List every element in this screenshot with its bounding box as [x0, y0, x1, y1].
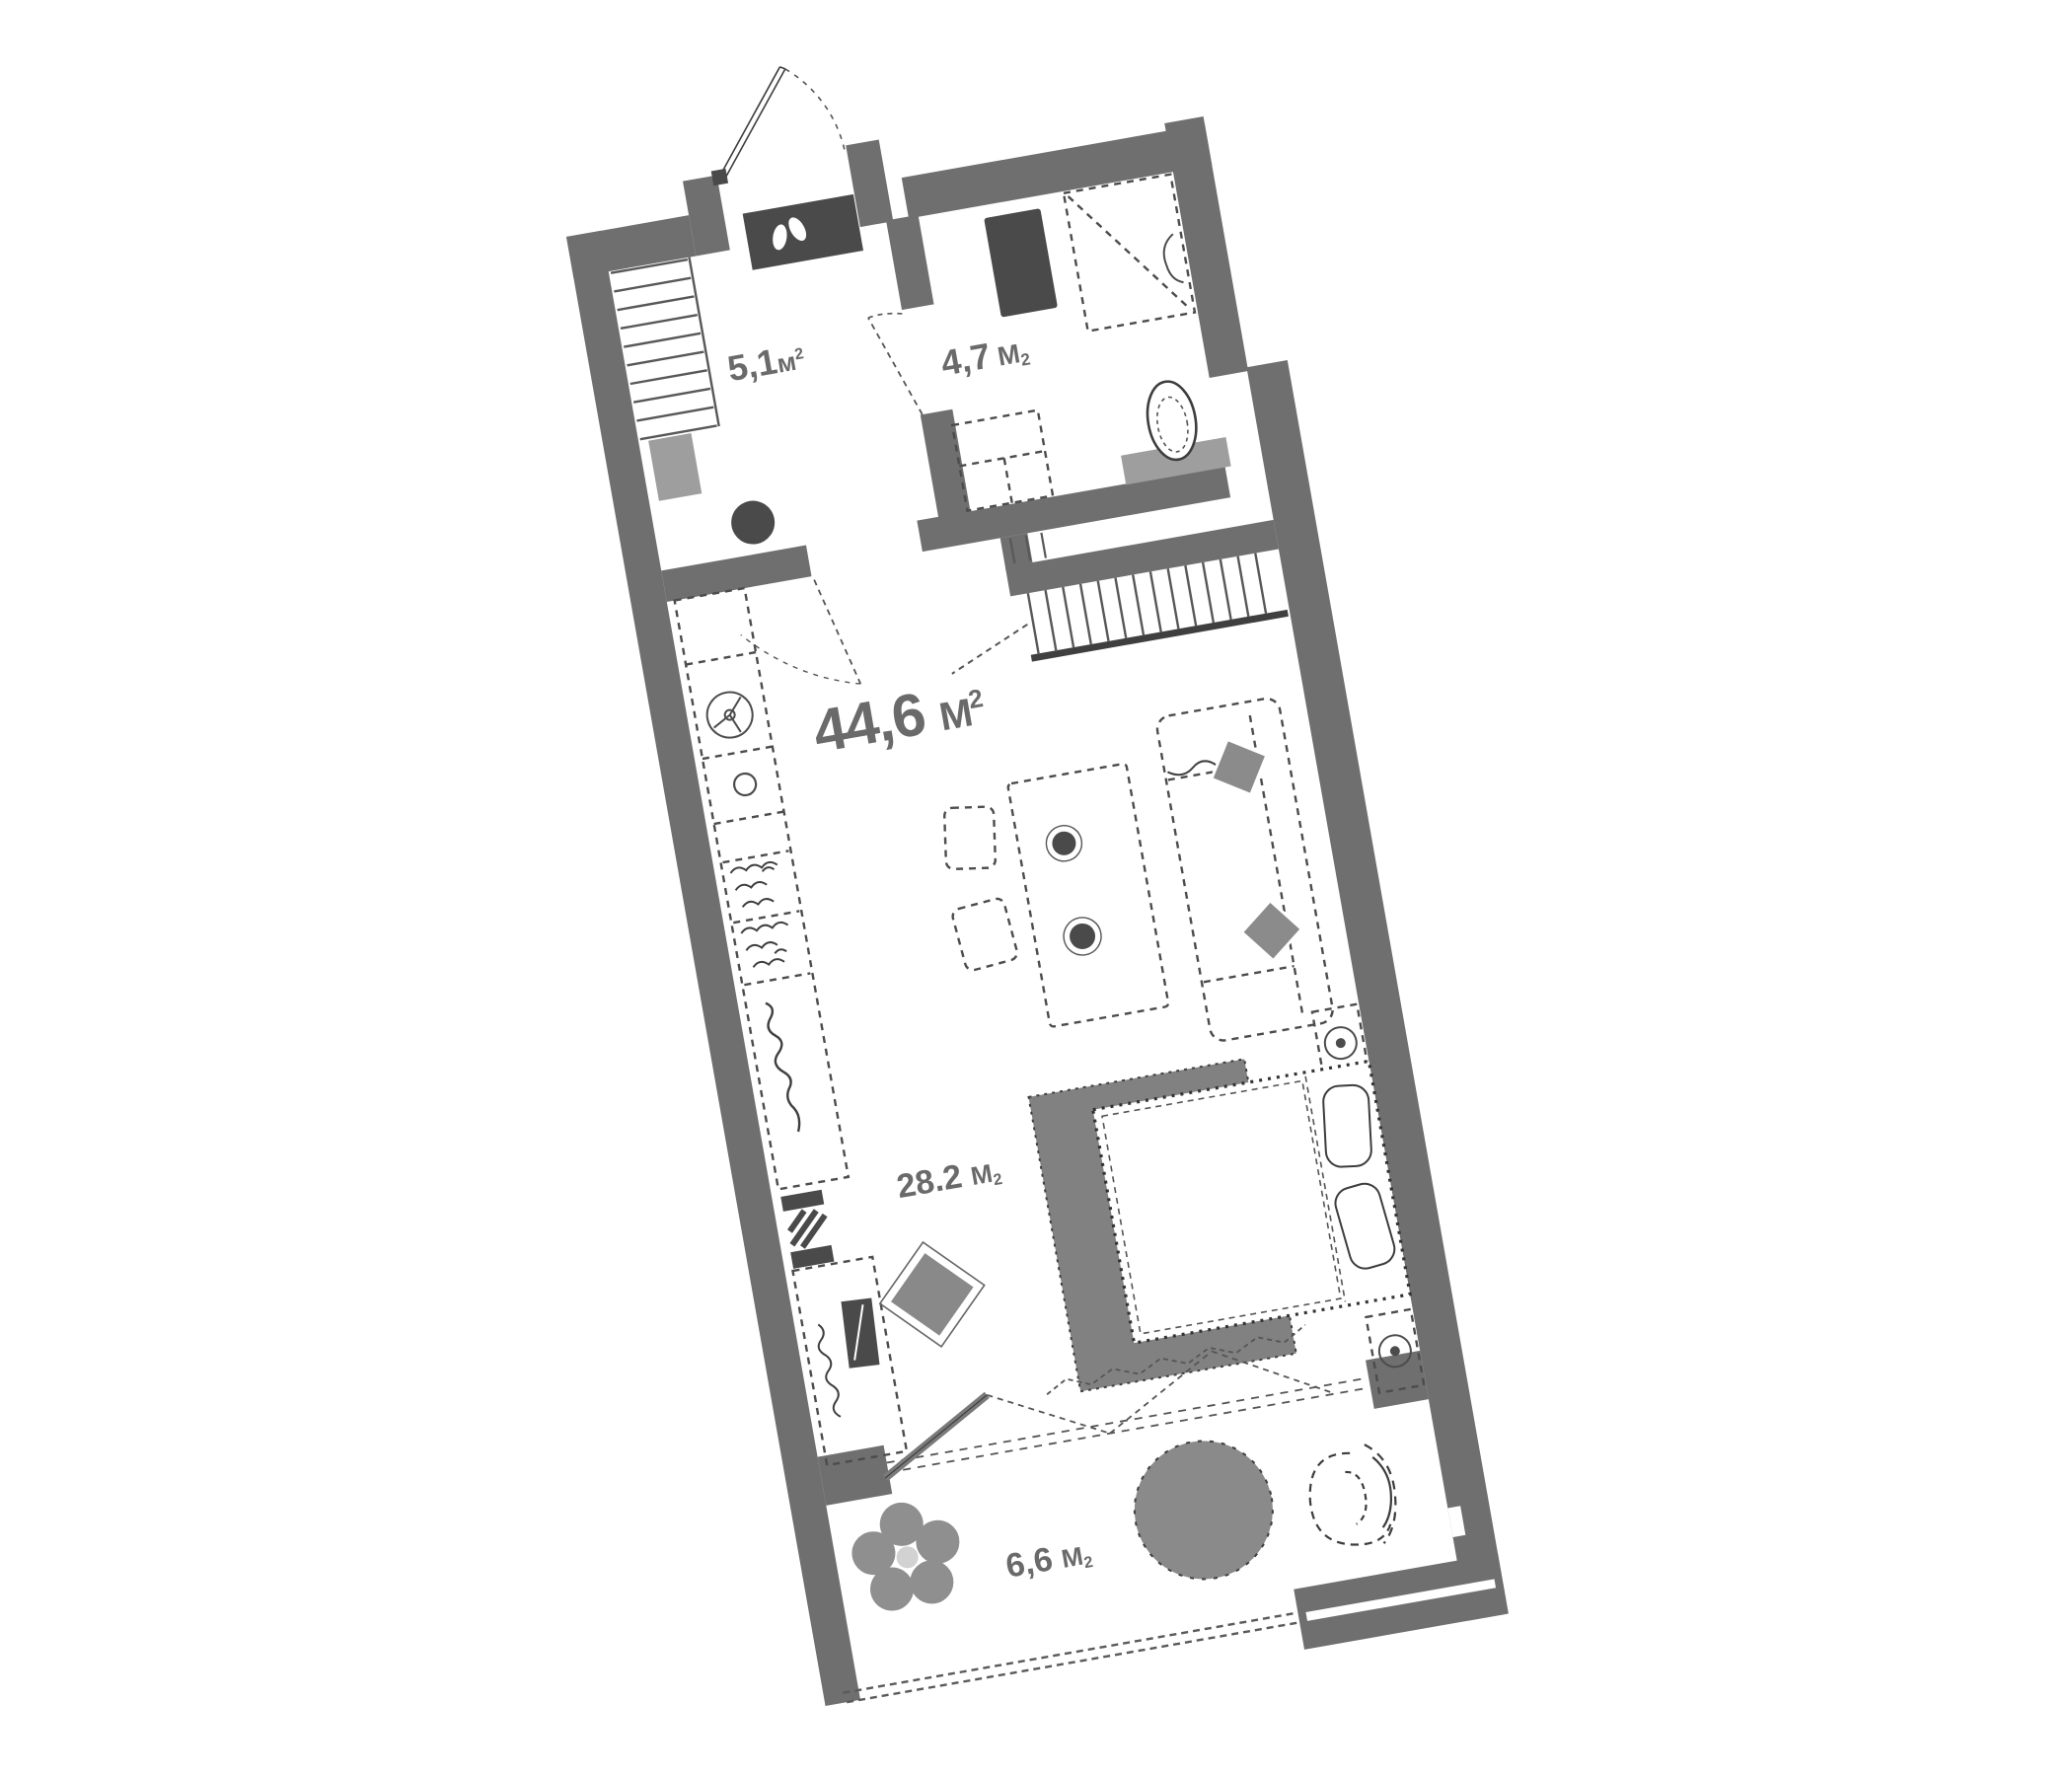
svg-text:4,7 М2: 4,7 М2 [938, 329, 1032, 384]
svg-text:44,6 М2: 44,6 М2 [808, 669, 989, 765]
svg-text:5,1м2: 5,1м2 [724, 335, 807, 389]
svg-text:28.2 М2: 28.2 М2 [894, 1150, 1003, 1206]
svg-text:6,6 М2: 6,6 М2 [1003, 1533, 1095, 1586]
